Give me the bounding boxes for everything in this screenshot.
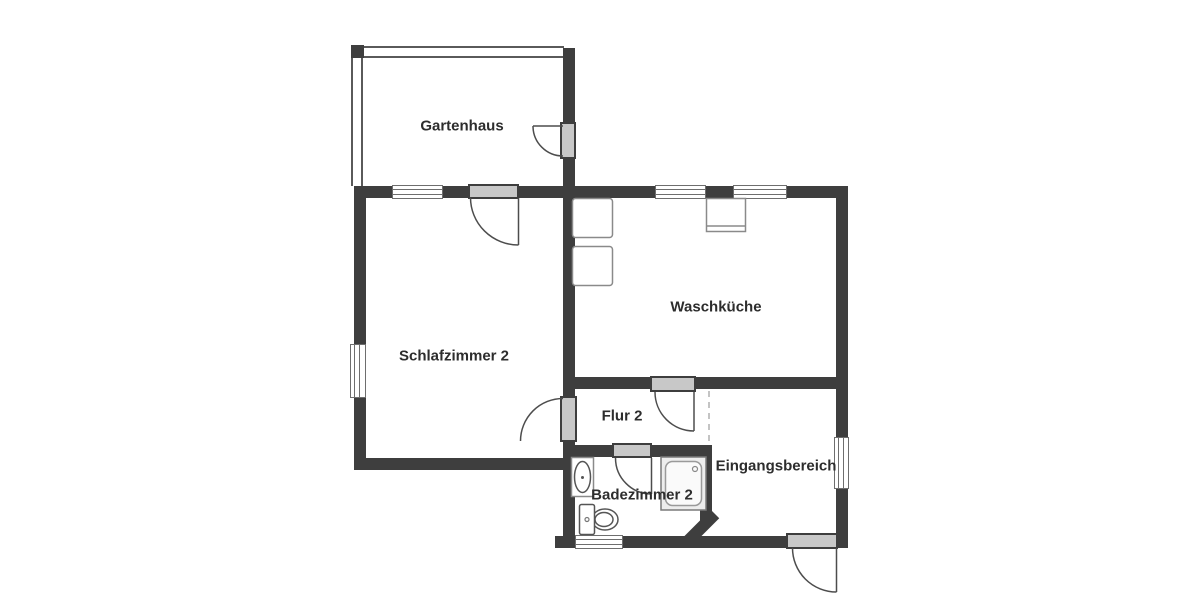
room-label-flur-2: Flur 2 (602, 408, 643, 425)
door-arc-entrance (793, 548, 837, 592)
room-label-badezimmer-2: Badezimmer 2 (591, 487, 693, 504)
room-schlafzimmer-2 (366, 198, 563, 458)
room-label-schlafzimmer-2: Schlafzimmer 2 (399, 348, 509, 365)
room-waschkueche (575, 198, 836, 377)
room-label-waschkueche: Waschküche (670, 299, 761, 316)
room-label-gartenhaus: Gartenhaus (420, 118, 503, 135)
floorplan-canvas: Gartenhaus Schlafzimmer 2 Waschküche Flu… (0, 0, 1200, 600)
room-label-eingangsbereich: Eingangsbereich (716, 458, 837, 475)
